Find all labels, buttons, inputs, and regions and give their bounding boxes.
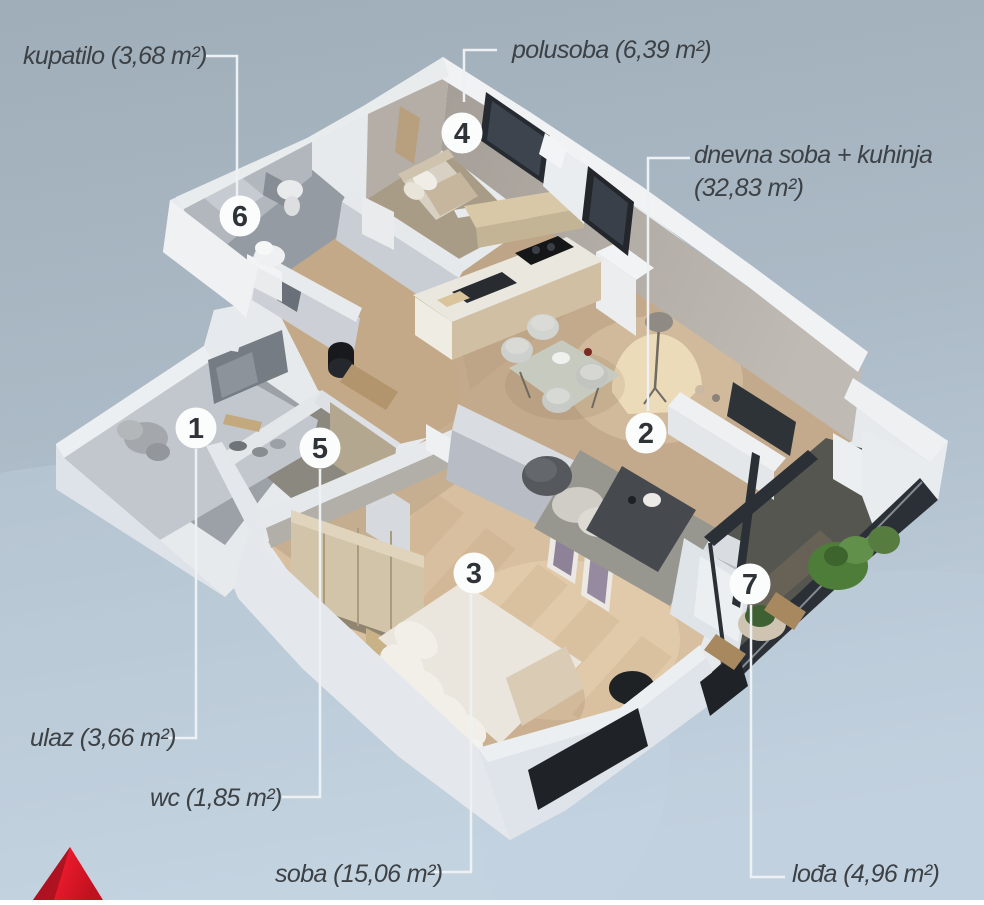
svg-text:lođa (4,96 m²): lođa (4,96 m²) <box>792 860 939 888</box>
svg-text:wc (1,85 m²): wc (1,85 m²) <box>150 784 282 812</box>
svg-text:ulaz (3,66 m²): ulaz (3,66 m²) <box>30 724 176 752</box>
svg-text:2: 2 <box>638 418 654 450</box>
svg-text:5: 5 <box>312 433 328 465</box>
svg-text:6: 6 <box>232 201 248 233</box>
svg-text:1: 1 <box>188 413 204 445</box>
svg-text:kupatilo (3,68 m²): kupatilo (3,68 m²) <box>23 42 207 70</box>
svg-text:3: 3 <box>466 558 482 590</box>
svg-text:dnevna soba + kuhinja: dnevna soba + kuhinja <box>694 141 933 169</box>
svg-text:polusoba (6,39 m²): polusoba (6,39 m²) <box>511 36 711 64</box>
svg-text:4: 4 <box>454 118 470 150</box>
svg-text:soba (15,06 m²): soba (15,06 m²) <box>275 860 442 888</box>
svg-text:(32,83 m²): (32,83 m²) <box>694 174 803 202</box>
svg-text:7: 7 <box>742 569 758 601</box>
